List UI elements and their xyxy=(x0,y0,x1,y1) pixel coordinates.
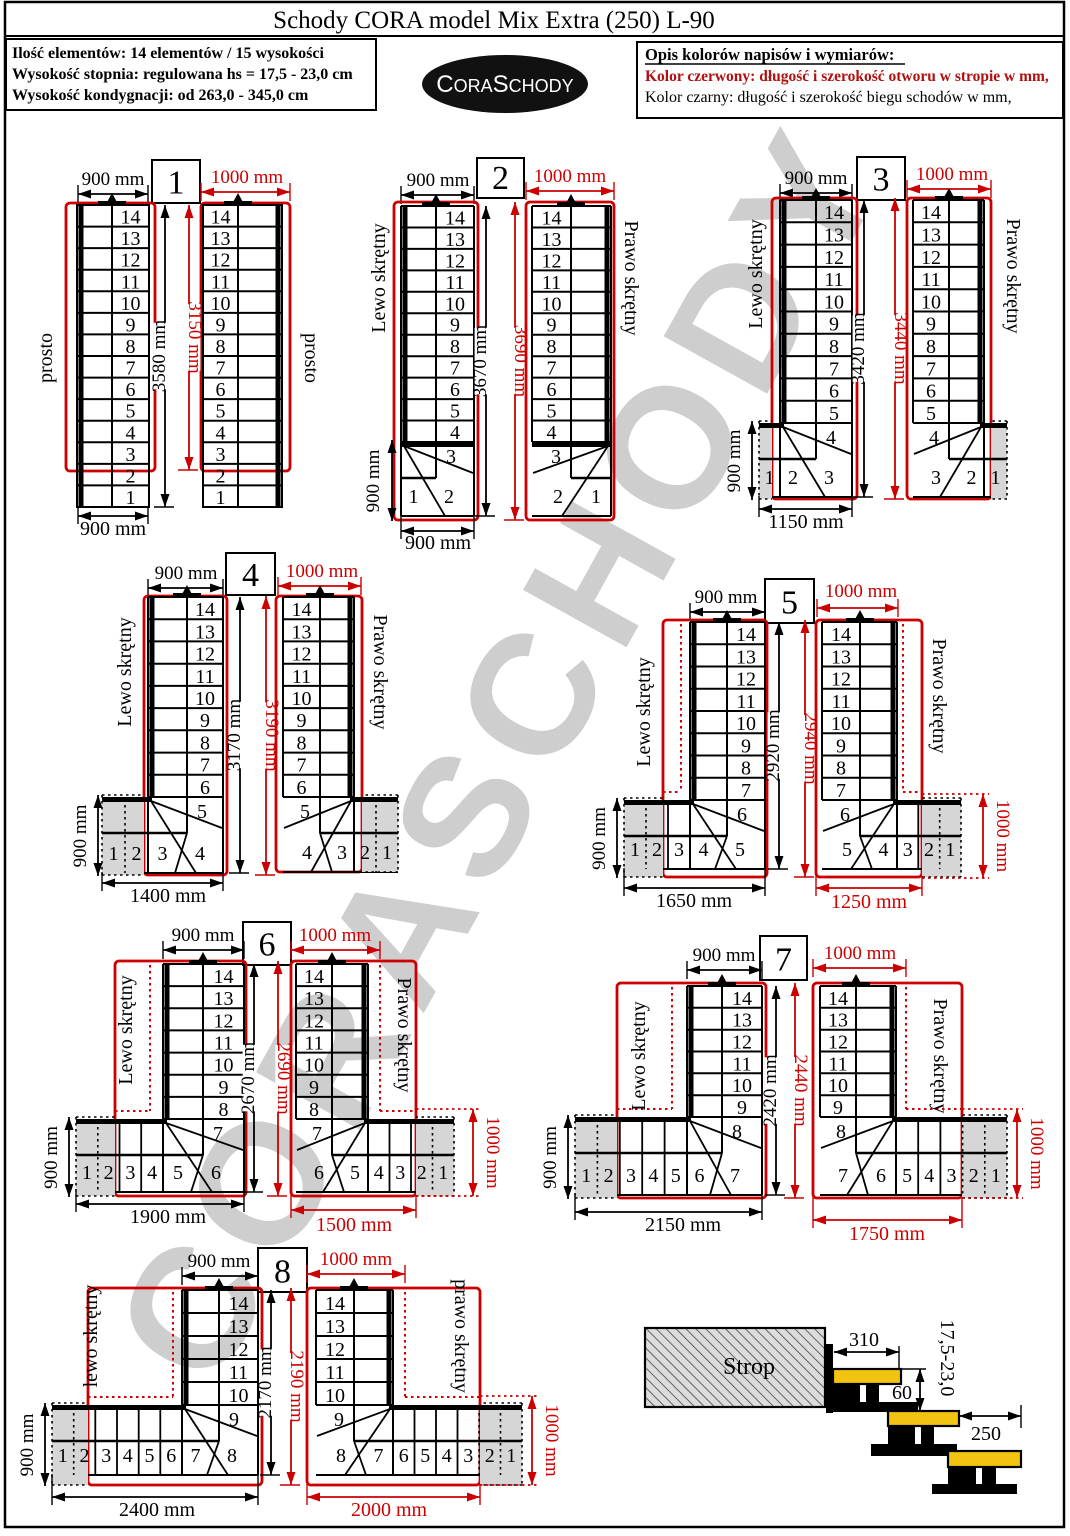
svg-text:9: 9 xyxy=(737,1097,747,1119)
svg-text:2420 mm: 2420 mm xyxy=(760,1054,781,1127)
svg-text:10: 10 xyxy=(325,1385,345,1407)
svg-text:4: 4 xyxy=(126,422,136,444)
svg-text:5: 5 xyxy=(350,1162,360,1184)
svg-text:12: 12 xyxy=(304,1010,324,1032)
svg-text:9: 9 xyxy=(216,314,226,336)
svg-text:2: 2 xyxy=(104,1162,114,1184)
svg-text:13: 13 xyxy=(445,229,465,251)
svg-text:prawo skrętny: prawo skrętny xyxy=(450,1279,472,1393)
svg-text:1000 mm: 1000 mm xyxy=(534,166,607,187)
svg-text:Prawo skrętny: Prawo skrętny xyxy=(1002,219,1024,334)
svg-text:9: 9 xyxy=(836,735,846,757)
svg-text:Kolor czerwony: długość i szer: Kolor czerwony: długość i szerokość otwo… xyxy=(645,68,1049,85)
svg-text:5: 5 xyxy=(781,584,798,621)
svg-text:1: 1 xyxy=(438,1162,448,1184)
svg-text:6: 6 xyxy=(926,381,936,403)
svg-text:6: 6 xyxy=(399,1445,409,1467)
svg-text:2920 mm: 2920 mm xyxy=(763,709,784,782)
svg-text:1000 mm: 1000 mm xyxy=(916,164,989,185)
svg-text:13: 13 xyxy=(325,1316,345,1338)
svg-text:14: 14 xyxy=(121,207,141,229)
svg-text:4: 4 xyxy=(547,422,557,444)
svg-text:10: 10 xyxy=(211,293,231,315)
svg-text:10: 10 xyxy=(828,1075,848,1097)
svg-text:5: 5 xyxy=(450,401,460,423)
svg-text:2190 mm: 2190 mm xyxy=(286,1350,307,1423)
svg-text:2: 2 xyxy=(788,467,798,489)
svg-text:11: 11 xyxy=(445,272,464,294)
svg-text:13: 13 xyxy=(732,1010,752,1032)
svg-text:Strop: Strop xyxy=(723,1354,775,1380)
svg-text:3: 3 xyxy=(873,162,890,199)
svg-text:7: 7 xyxy=(836,780,846,802)
svg-text:3: 3 xyxy=(158,843,168,865)
svg-text:3: 3 xyxy=(395,1162,405,1184)
svg-text:2: 2 xyxy=(126,465,136,487)
svg-text:14: 14 xyxy=(214,966,234,988)
svg-text:7: 7 xyxy=(450,358,460,380)
svg-text:Lewo skrętny: Lewo skrętny xyxy=(628,1001,650,1110)
svg-text:12: 12 xyxy=(292,644,312,666)
svg-text:3150 mm: 3150 mm xyxy=(184,301,205,374)
svg-text:Prawo skrętny: Prawo skrętny xyxy=(393,978,415,1093)
svg-text:14: 14 xyxy=(292,599,312,621)
svg-text:10: 10 xyxy=(214,1055,234,1077)
svg-text:4: 4 xyxy=(147,1162,157,1184)
svg-text:Lewo skrętny: Lewo skrętny xyxy=(368,223,390,332)
svg-text:11: 11 xyxy=(229,1362,248,1384)
svg-text:12: 12 xyxy=(214,1010,234,1032)
svg-text:11: 11 xyxy=(292,666,311,688)
svg-text:6: 6 xyxy=(876,1165,886,1187)
svg-text:Wysokość kondygnacji: od 263,0: Wysokość kondygnacji: od 263,0 - 345,0 c… xyxy=(12,87,309,104)
svg-text:1650 mm: 1650 mm xyxy=(656,890,733,912)
svg-text:4: 4 xyxy=(242,557,259,594)
svg-text:9: 9 xyxy=(547,315,557,337)
svg-text:5: 5 xyxy=(197,801,207,823)
svg-text:900 mm: 900 mm xyxy=(155,563,218,584)
svg-text:900 mm: 900 mm xyxy=(589,807,610,870)
svg-text:8: 8 xyxy=(450,336,460,358)
svg-text:Opis kolorów napisów i wymiaró: Opis kolorów napisów i wymiarów: xyxy=(645,45,894,64)
svg-text:1000 mm: 1000 mm xyxy=(320,1249,393,1270)
svg-text:2: 2 xyxy=(652,839,662,861)
svg-text:4: 4 xyxy=(450,422,460,444)
svg-text:8: 8 xyxy=(836,758,846,780)
svg-text:Lewo skrętny: Lewo skrętny xyxy=(114,617,136,726)
svg-text:14: 14 xyxy=(732,988,752,1010)
svg-text:5: 5 xyxy=(902,1165,912,1187)
svg-text:13: 13 xyxy=(736,646,756,668)
svg-text:9: 9 xyxy=(229,1409,239,1431)
svg-text:8: 8 xyxy=(741,758,751,780)
svg-text:5: 5 xyxy=(671,1165,681,1187)
svg-text:8: 8 xyxy=(547,336,557,358)
svg-text:7: 7 xyxy=(741,780,751,802)
svg-text:Prawo skrętny: Prawo skrętny xyxy=(620,221,642,336)
svg-text:9: 9 xyxy=(450,315,460,337)
svg-text:1000 mm: 1000 mm xyxy=(824,943,897,964)
svg-text:1000 mm: 1000 mm xyxy=(825,581,898,602)
svg-text:2: 2 xyxy=(604,1165,614,1187)
svg-text:8: 8 xyxy=(297,732,307,754)
svg-text:3: 3 xyxy=(931,467,941,489)
svg-text:11: 11 xyxy=(921,269,940,291)
svg-text:8: 8 xyxy=(336,1445,346,1467)
svg-text:1: 1 xyxy=(382,842,392,864)
svg-text:13: 13 xyxy=(292,621,312,643)
svg-text:9: 9 xyxy=(741,735,751,757)
svg-text:5: 5 xyxy=(216,401,226,423)
svg-text:60: 60 xyxy=(892,1382,912,1404)
svg-text:8: 8 xyxy=(926,336,936,358)
svg-text:2: 2 xyxy=(132,843,142,865)
svg-text:1000 mm: 1000 mm xyxy=(286,561,359,582)
svg-text:4: 4 xyxy=(374,1162,384,1184)
svg-text:10: 10 xyxy=(292,688,312,710)
svg-text:10: 10 xyxy=(195,688,215,710)
svg-text:900 mm: 900 mm xyxy=(172,925,235,946)
svg-text:lewo skrętny: lewo skrętny xyxy=(80,1285,102,1388)
svg-text:11: 11 xyxy=(736,691,755,713)
svg-text:3: 3 xyxy=(551,446,561,468)
svg-text:13: 13 xyxy=(824,225,844,247)
svg-text:3: 3 xyxy=(101,1445,111,1467)
svg-text:900 mm: 900 mm xyxy=(17,1413,38,1476)
svg-text:3190 mm: 3190 mm xyxy=(261,699,282,772)
svg-text:3580 mm: 3580 mm xyxy=(149,320,170,393)
svg-text:8: 8 xyxy=(216,336,226,358)
svg-text:10: 10 xyxy=(304,1055,324,1077)
svg-text:CORASCHODY: CORASCHODY xyxy=(436,71,573,98)
svg-text:3: 3 xyxy=(337,842,347,864)
svg-text:6: 6 xyxy=(840,804,850,826)
svg-text:6: 6 xyxy=(450,379,460,401)
svg-text:11: 11 xyxy=(211,271,230,293)
svg-text:9: 9 xyxy=(297,710,307,732)
svg-text:1: 1 xyxy=(58,1445,68,1467)
svg-text:900 mm: 900 mm xyxy=(188,1251,251,1272)
svg-text:900 mm: 900 mm xyxy=(785,168,848,189)
svg-text:12: 12 xyxy=(121,250,141,272)
svg-text:4: 4 xyxy=(826,427,836,449)
svg-text:10: 10 xyxy=(121,293,141,315)
svg-text:13: 13 xyxy=(214,988,234,1010)
svg-text:12: 12 xyxy=(828,1031,848,1053)
svg-text:13: 13 xyxy=(121,228,141,250)
svg-text:prosto: prosto xyxy=(300,333,322,383)
svg-text:13: 13 xyxy=(828,1010,848,1032)
svg-text:3: 3 xyxy=(446,446,456,468)
svg-text:12: 12 xyxy=(445,250,465,272)
svg-text:3420 mm: 3420 mm xyxy=(848,312,869,385)
svg-text:250: 250 xyxy=(971,1423,1001,1445)
svg-text:Lewo skrętny: Lewo skrętny xyxy=(633,657,655,766)
svg-text:1000 mm: 1000 mm xyxy=(299,925,372,946)
svg-text:7: 7 xyxy=(730,1165,740,1187)
svg-text:1150 mm: 1150 mm xyxy=(768,511,844,533)
svg-text:3: 3 xyxy=(125,1162,135,1184)
svg-text:900 mm: 900 mm xyxy=(82,169,145,190)
svg-text:6: 6 xyxy=(297,777,307,799)
svg-text:14: 14 xyxy=(824,202,844,224)
svg-text:4: 4 xyxy=(442,1445,452,1467)
svg-text:1: 1 xyxy=(506,1445,516,1467)
svg-text:3: 3 xyxy=(824,467,834,489)
svg-text:3170 mm: 3170 mm xyxy=(224,699,245,772)
svg-text:12: 12 xyxy=(542,250,562,272)
svg-text:12: 12 xyxy=(195,644,215,666)
svg-text:6: 6 xyxy=(216,379,226,401)
svg-text:Lewo skrętny: Lewo skrętny xyxy=(115,975,137,1084)
svg-text:11: 11 xyxy=(325,1362,344,1384)
svg-text:4: 4 xyxy=(929,427,939,449)
svg-text:7: 7 xyxy=(312,1123,322,1145)
svg-text:8: 8 xyxy=(274,1253,291,1290)
svg-text:11: 11 xyxy=(828,1053,847,1075)
svg-text:900 mm: 900 mm xyxy=(41,1126,62,1189)
svg-text:10: 10 xyxy=(824,291,844,313)
svg-text:6: 6 xyxy=(200,777,210,799)
svg-text:Lewo skrętny: Lewo skrętny xyxy=(745,219,767,328)
svg-text:2000 mm: 2000 mm xyxy=(351,1499,428,1521)
svg-text:Kolor czarny: długość i szerok: Kolor czarny: długość i szerokość biegu … xyxy=(645,89,1012,106)
svg-text:3: 3 xyxy=(463,1445,473,1467)
svg-text:1250 mm: 1250 mm xyxy=(831,891,908,913)
svg-text:9: 9 xyxy=(334,1409,344,1431)
svg-text:14: 14 xyxy=(229,1293,249,1315)
svg-text:11: 11 xyxy=(304,1033,323,1055)
svg-text:4: 4 xyxy=(648,1165,658,1187)
svg-text:9: 9 xyxy=(926,314,936,336)
svg-text:6: 6 xyxy=(547,379,557,401)
svg-text:7: 7 xyxy=(213,1123,223,1145)
svg-text:10: 10 xyxy=(736,713,756,735)
svg-text:2: 2 xyxy=(485,1445,495,1467)
svg-text:7: 7 xyxy=(200,755,210,777)
svg-text:Prawo skrętny: Prawo skrętny xyxy=(369,615,391,730)
svg-text:2: 2 xyxy=(80,1445,90,1467)
svg-text:9: 9 xyxy=(833,1097,843,1119)
svg-text:13: 13 xyxy=(195,621,215,643)
svg-text:1: 1 xyxy=(168,165,185,202)
svg-text:5: 5 xyxy=(547,401,557,423)
svg-text:14: 14 xyxy=(542,208,562,230)
svg-text:2400 mm: 2400 mm xyxy=(119,1499,196,1521)
svg-text:9: 9 xyxy=(126,314,136,336)
svg-text:prosto: prosto xyxy=(35,333,57,383)
svg-text:4: 4 xyxy=(216,422,226,444)
svg-text:14: 14 xyxy=(304,966,324,988)
svg-text:5: 5 xyxy=(842,839,852,861)
svg-text:8: 8 xyxy=(309,1099,319,1121)
svg-text:3: 3 xyxy=(947,1165,957,1187)
svg-text:1: 1 xyxy=(991,1165,1001,1187)
svg-text:5: 5 xyxy=(735,839,745,861)
svg-text:8: 8 xyxy=(200,732,210,754)
svg-text:6: 6 xyxy=(829,381,839,403)
svg-text:14: 14 xyxy=(921,202,941,224)
svg-text:9: 9 xyxy=(829,314,839,336)
svg-text:1: 1 xyxy=(126,487,136,509)
svg-text:2: 2 xyxy=(417,1162,427,1184)
svg-text:1: 1 xyxy=(409,486,419,508)
svg-text:1: 1 xyxy=(109,843,119,865)
svg-text:2: 2 xyxy=(492,160,509,197)
svg-text:14: 14 xyxy=(831,624,851,646)
svg-text:4: 4 xyxy=(924,1165,934,1187)
svg-text:10: 10 xyxy=(921,291,941,313)
svg-text:1750 mm: 1750 mm xyxy=(849,1223,926,1245)
svg-text:3670 mm: 3670 mm xyxy=(470,325,491,398)
svg-text:8: 8 xyxy=(732,1121,742,1143)
svg-text:6: 6 xyxy=(126,379,136,401)
svg-text:13: 13 xyxy=(304,988,324,1010)
svg-text:7: 7 xyxy=(216,358,226,380)
svg-text:14: 14 xyxy=(736,624,756,646)
svg-text:5: 5 xyxy=(145,1445,155,1467)
svg-text:4: 4 xyxy=(879,839,889,861)
svg-text:2670 mm: 2670 mm xyxy=(238,1042,259,1115)
svg-text:7: 7 xyxy=(374,1445,384,1467)
svg-text:4: 4 xyxy=(195,843,205,865)
svg-text:7: 7 xyxy=(829,358,839,380)
svg-text:2: 2 xyxy=(216,465,226,487)
svg-text:900 mm: 900 mm xyxy=(407,170,470,191)
svg-text:4: 4 xyxy=(302,842,312,864)
svg-text:10: 10 xyxy=(732,1075,752,1097)
svg-text:1000 mm: 1000 mm xyxy=(992,800,1013,873)
svg-text:1900 mm: 1900 mm xyxy=(130,1206,207,1228)
svg-text:7: 7 xyxy=(926,358,936,380)
svg-text:6: 6 xyxy=(737,804,747,826)
svg-text:6: 6 xyxy=(314,1162,324,1184)
svg-text:900 mm: 900 mm xyxy=(80,518,147,540)
svg-text:17,5-23,0: 17,5-23,0 xyxy=(936,1320,958,1397)
svg-text:14: 14 xyxy=(445,208,465,230)
svg-text:1: 1 xyxy=(945,839,955,861)
svg-text:2150 mm: 2150 mm xyxy=(645,1214,722,1236)
svg-text:14: 14 xyxy=(828,988,848,1010)
svg-text:13: 13 xyxy=(229,1316,249,1338)
svg-text:1: 1 xyxy=(765,467,775,489)
svg-text:7: 7 xyxy=(775,941,792,978)
svg-text:6: 6 xyxy=(211,1162,221,1184)
svg-text:3: 3 xyxy=(126,444,136,466)
svg-text:6: 6 xyxy=(259,927,276,964)
svg-text:12: 12 xyxy=(831,669,851,691)
svg-text:1: 1 xyxy=(581,1165,591,1187)
svg-text:14: 14 xyxy=(195,599,215,621)
svg-text:1: 1 xyxy=(591,486,601,508)
svg-text:11: 11 xyxy=(195,666,214,688)
svg-text:11: 11 xyxy=(214,1033,233,1055)
svg-text:6: 6 xyxy=(166,1445,176,1467)
svg-text:6: 6 xyxy=(695,1165,705,1187)
svg-text:1: 1 xyxy=(216,487,226,509)
svg-text:12: 12 xyxy=(824,247,844,269)
svg-text:9: 9 xyxy=(200,710,210,732)
svg-text:7: 7 xyxy=(838,1165,848,1187)
svg-text:1: 1 xyxy=(82,1162,92,1184)
svg-text:2: 2 xyxy=(553,486,563,508)
svg-text:12: 12 xyxy=(211,250,231,272)
svg-text:1: 1 xyxy=(991,467,1001,489)
svg-text:12: 12 xyxy=(732,1031,752,1053)
svg-text:1000 mm: 1000 mm xyxy=(1026,1117,1047,1190)
svg-text:5: 5 xyxy=(829,403,839,425)
svg-text:13: 13 xyxy=(211,228,231,250)
svg-text:900 mm: 900 mm xyxy=(405,532,472,554)
svg-text:1500 mm: 1500 mm xyxy=(316,1214,393,1236)
svg-text:7: 7 xyxy=(547,358,557,380)
svg-text:1400 mm: 1400 mm xyxy=(130,885,207,907)
svg-text:4: 4 xyxy=(123,1445,133,1467)
svg-text:2: 2 xyxy=(967,467,977,489)
svg-text:900 mm: 900 mm xyxy=(70,804,91,867)
svg-text:11: 11 xyxy=(831,691,850,713)
svg-text:13: 13 xyxy=(542,229,562,251)
svg-text:14: 14 xyxy=(325,1293,345,1315)
svg-text:11: 11 xyxy=(824,269,843,291)
svg-text:10: 10 xyxy=(229,1385,249,1407)
svg-text:5: 5 xyxy=(173,1162,183,1184)
svg-text:Prawo skrętny: Prawo skrętny xyxy=(928,639,950,754)
svg-text:9: 9 xyxy=(309,1077,319,1099)
svg-text:900 mm: 900 mm xyxy=(540,1126,561,1189)
svg-text:2: 2 xyxy=(360,842,370,864)
svg-text:900 mm: 900 mm xyxy=(363,449,384,512)
svg-text:900 mm: 900 mm xyxy=(724,429,745,492)
svg-text:3: 3 xyxy=(626,1165,636,1187)
svg-text:900 mm: 900 mm xyxy=(693,945,756,966)
svg-text:3690 mm: 3690 mm xyxy=(510,325,531,398)
svg-text:7: 7 xyxy=(191,1445,201,1467)
svg-text:13: 13 xyxy=(831,646,851,668)
svg-text:4: 4 xyxy=(699,839,709,861)
svg-text:8: 8 xyxy=(219,1099,229,1121)
svg-text:2: 2 xyxy=(924,839,934,861)
svg-text:Wysokość stopnia: regulowana: Wysokość stopnia: regulowana hs = 17,5 -… xyxy=(12,66,353,83)
svg-text:12: 12 xyxy=(229,1339,249,1361)
svg-text:2: 2 xyxy=(444,486,454,508)
svg-text:8: 8 xyxy=(126,336,136,358)
svg-text:7: 7 xyxy=(297,755,307,777)
svg-text:11: 11 xyxy=(121,271,140,293)
svg-text:3: 3 xyxy=(903,839,913,861)
svg-text:3: 3 xyxy=(674,839,684,861)
svg-text:3: 3 xyxy=(216,444,226,466)
svg-text:Ilość elementów: 14 elementów: Ilość elementów: 14 elementów / 15 wysok… xyxy=(12,45,325,62)
svg-text:1: 1 xyxy=(630,839,640,861)
svg-text:12: 12 xyxy=(921,247,941,269)
svg-text:10: 10 xyxy=(831,713,851,735)
svg-text:1000 mm: 1000 mm xyxy=(541,1404,562,1477)
svg-text:11: 11 xyxy=(732,1053,751,1075)
svg-text:1000 mm: 1000 mm xyxy=(482,1116,503,1189)
svg-text:8: 8 xyxy=(227,1445,237,1467)
svg-text:14: 14 xyxy=(211,207,231,229)
svg-text:12: 12 xyxy=(325,1339,345,1361)
svg-text:8: 8 xyxy=(836,1121,846,1143)
svg-text:1000 mm: 1000 mm xyxy=(211,167,284,188)
svg-text:2440 mm: 2440 mm xyxy=(790,1054,811,1127)
svg-text:310: 310 xyxy=(849,1329,879,1351)
svg-text:5: 5 xyxy=(300,801,310,823)
svg-text:2: 2 xyxy=(969,1165,979,1187)
svg-text:12: 12 xyxy=(736,669,756,691)
svg-text:5: 5 xyxy=(126,401,136,423)
